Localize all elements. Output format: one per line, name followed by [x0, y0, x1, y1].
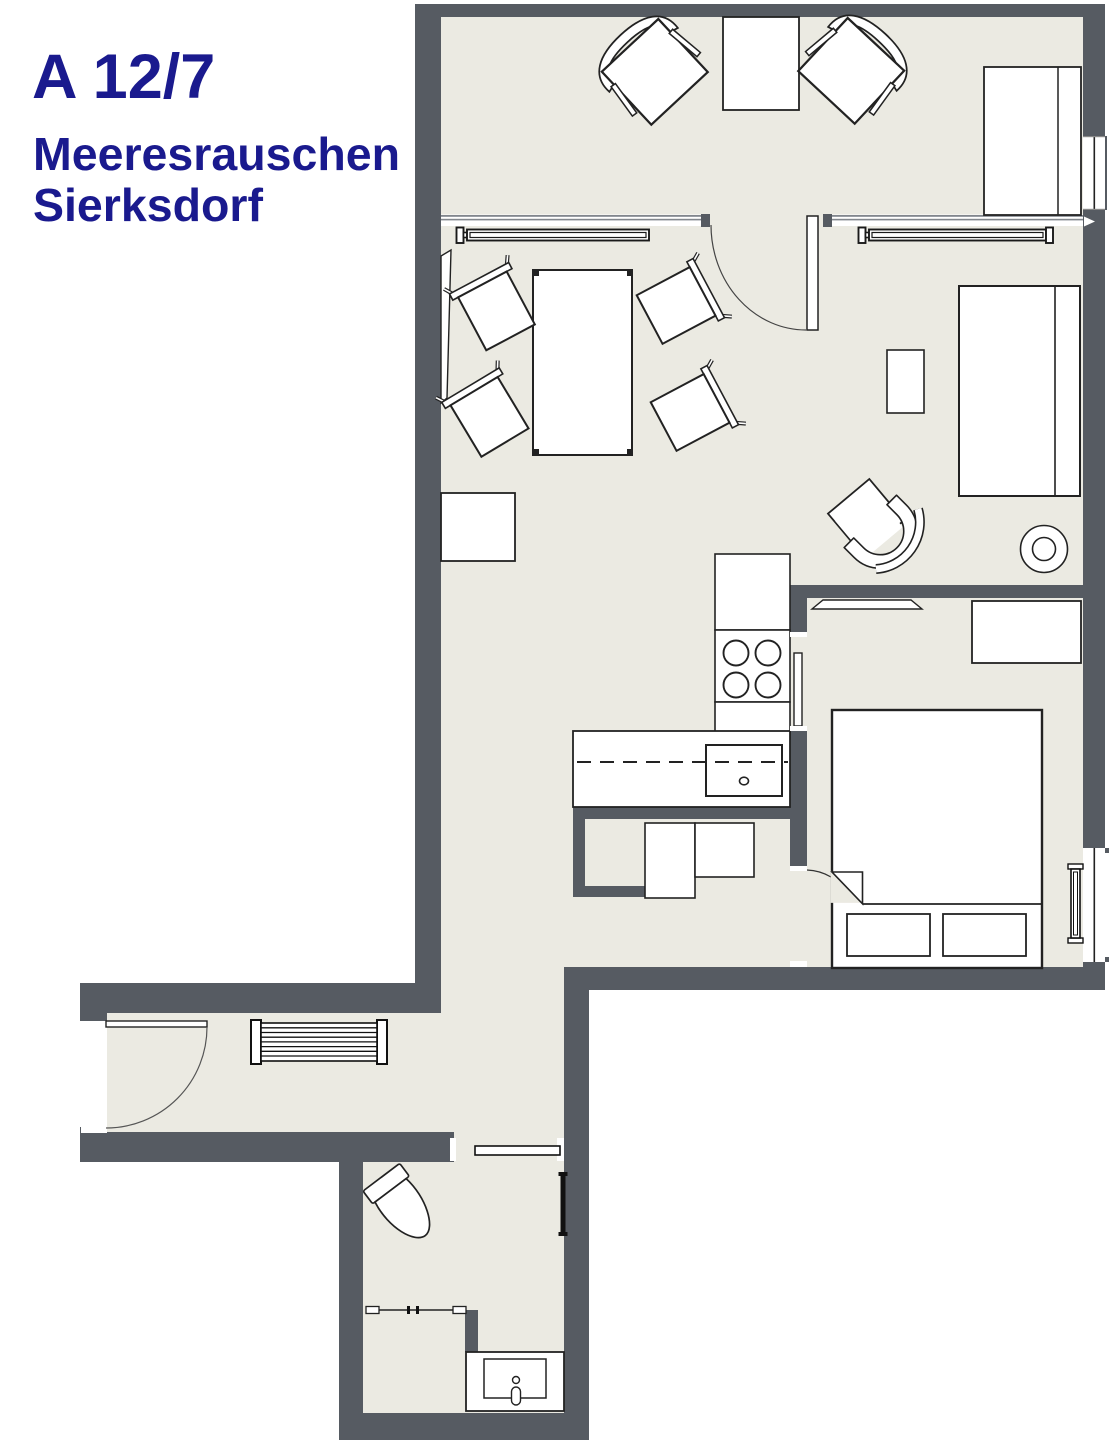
svg-text:Sierksdorf: Sierksdorf [33, 179, 264, 231]
svg-text:A 12/7: A 12/7 [32, 42, 215, 112]
svg-text:Meeresrauschen: Meeresrauschen [33, 128, 400, 180]
